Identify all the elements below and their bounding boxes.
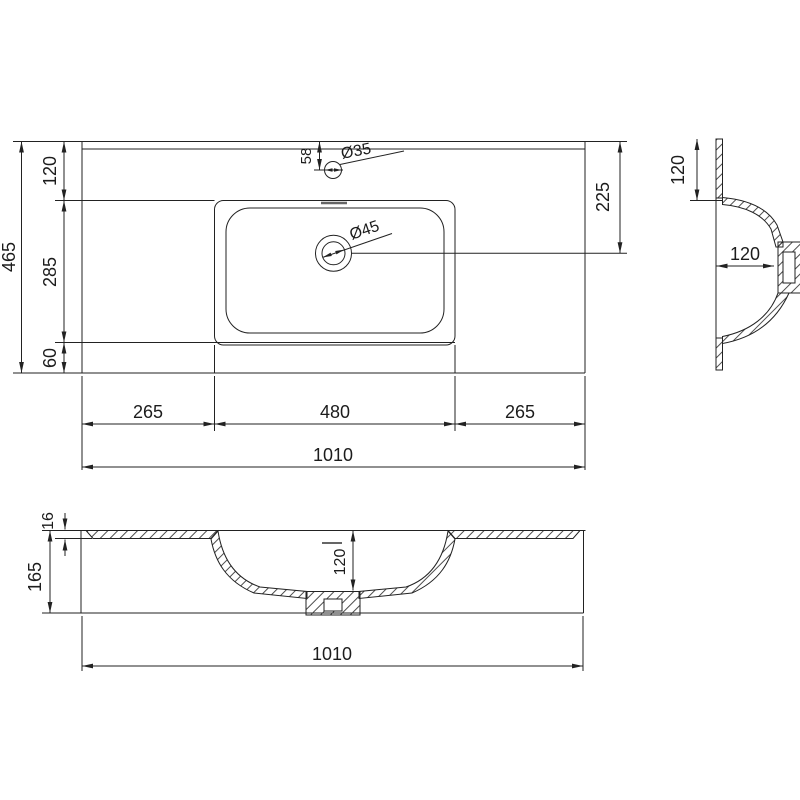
dim-width-seg-right: 265 xyxy=(505,402,535,422)
dim-depth-seg-60: 60 xyxy=(40,348,60,368)
diameter-arrow xyxy=(334,168,342,171)
dim-height-lines xyxy=(42,531,81,614)
technical-drawing-canvas: Ø35 58 Ø45 225 465 xyxy=(0,0,800,800)
countertop-outline xyxy=(13,142,627,374)
dim-depth-seg-120: 120 xyxy=(40,156,60,186)
front-section-view: 120 16 165 1010 xyxy=(25,512,586,671)
countertop-section xyxy=(86,531,580,539)
dim-width-seg-center: 480 xyxy=(320,402,350,422)
bowl-wall-left xyxy=(211,531,307,599)
bowl-wall-upper xyxy=(723,198,784,248)
dim-faucet-offset: 58 xyxy=(298,148,315,165)
dim-thickness-lines xyxy=(55,513,92,556)
dim-depth-seg-285: 285 xyxy=(40,257,60,287)
dim-overall-depth: 465 xyxy=(0,242,19,272)
bowl-wall-lower xyxy=(723,293,790,344)
drain-boss-section xyxy=(778,242,800,293)
dim-thickness: 16 xyxy=(40,512,57,530)
dim-depth-segments-lines xyxy=(55,142,455,374)
dim-front-width: 1010 xyxy=(312,644,352,664)
bowl-wall-right xyxy=(359,531,455,599)
dim-front-bowl-depth: 120 xyxy=(332,549,349,576)
dim-faucet-diameter: Ø35 xyxy=(340,140,373,162)
drain-boss-front xyxy=(306,592,360,616)
dim-side-bowl-depth: 120 xyxy=(730,244,760,264)
dim-drain-diameter: Ø45 xyxy=(347,218,381,244)
dim-width-seg-left: 265 xyxy=(133,402,163,422)
top-view: Ø35 58 Ø45 225 465 xyxy=(0,140,627,470)
basin-outline xyxy=(215,201,456,374)
dim-height: 165 xyxy=(25,562,45,592)
washbasin-drawing: Ø35 58 Ø45 225 465 xyxy=(0,0,800,800)
dim-overall-width: 1010 xyxy=(313,445,353,465)
side-section-view: 120 120 xyxy=(668,139,800,370)
dim-drain-offset: 225 xyxy=(593,182,613,212)
diameter-arrow xyxy=(325,168,333,171)
dim-side-rim-height: 120 xyxy=(668,155,688,185)
